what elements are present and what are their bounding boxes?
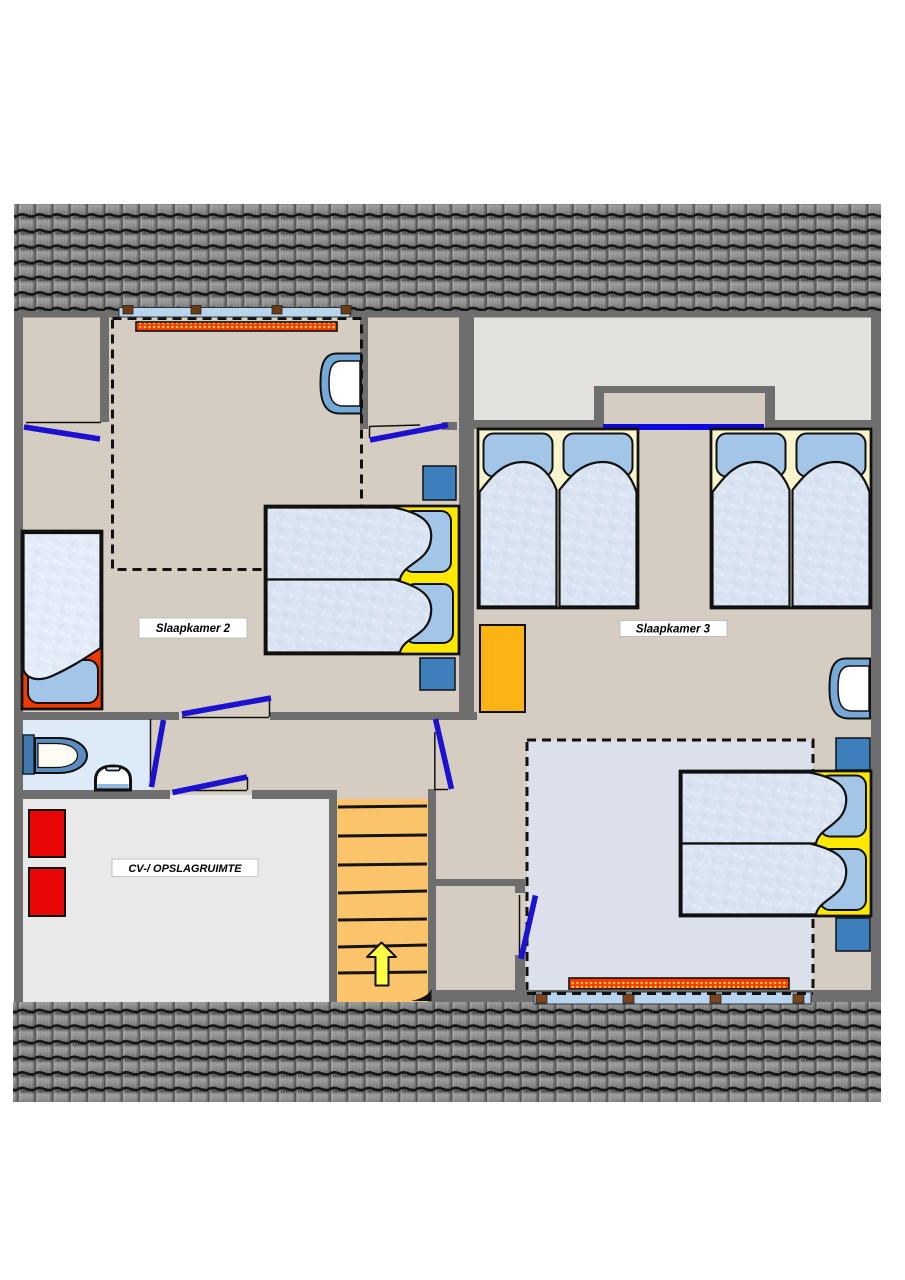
svg-text:Slaapkamer 2: Slaapkamer 2 [156, 623, 231, 635]
svg-text:Slaapkamer 3: Slaapkamer 3 [636, 624, 711, 636]
svg-text:CV-/ OPSLAGRUIMTE: CV-/ OPSLAGRUIMTE [128, 863, 242, 875]
